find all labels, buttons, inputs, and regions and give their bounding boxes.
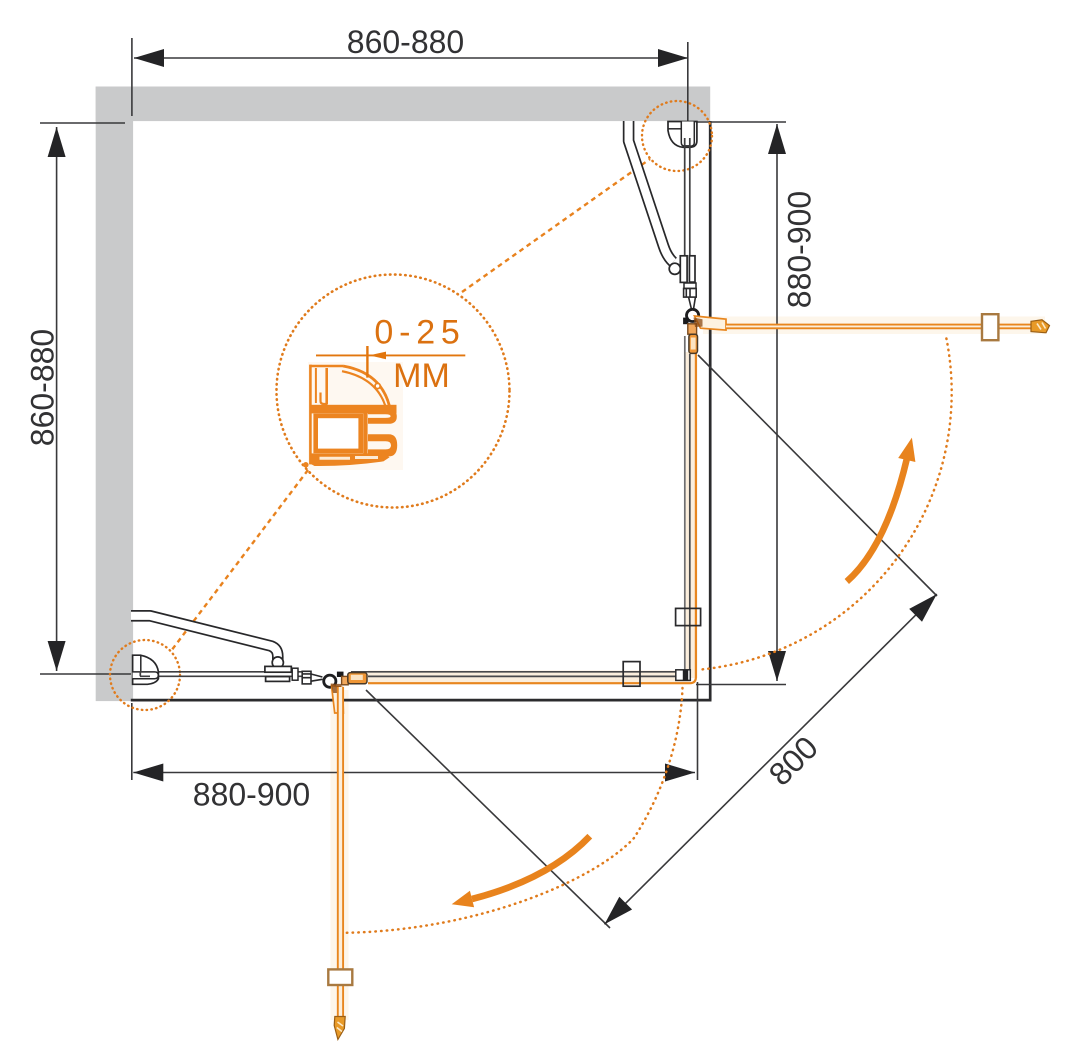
svg-text:0-25: 0-25 bbox=[374, 313, 465, 351]
svg-text:880-900: 880-900 bbox=[782, 191, 818, 308]
svg-text:860-880: 860-880 bbox=[347, 24, 464, 60]
svg-text:880-900: 880-900 bbox=[193, 777, 310, 813]
svg-text:ММ: ММ bbox=[393, 357, 450, 395]
svg-text:860-880: 860-880 bbox=[25, 329, 61, 446]
